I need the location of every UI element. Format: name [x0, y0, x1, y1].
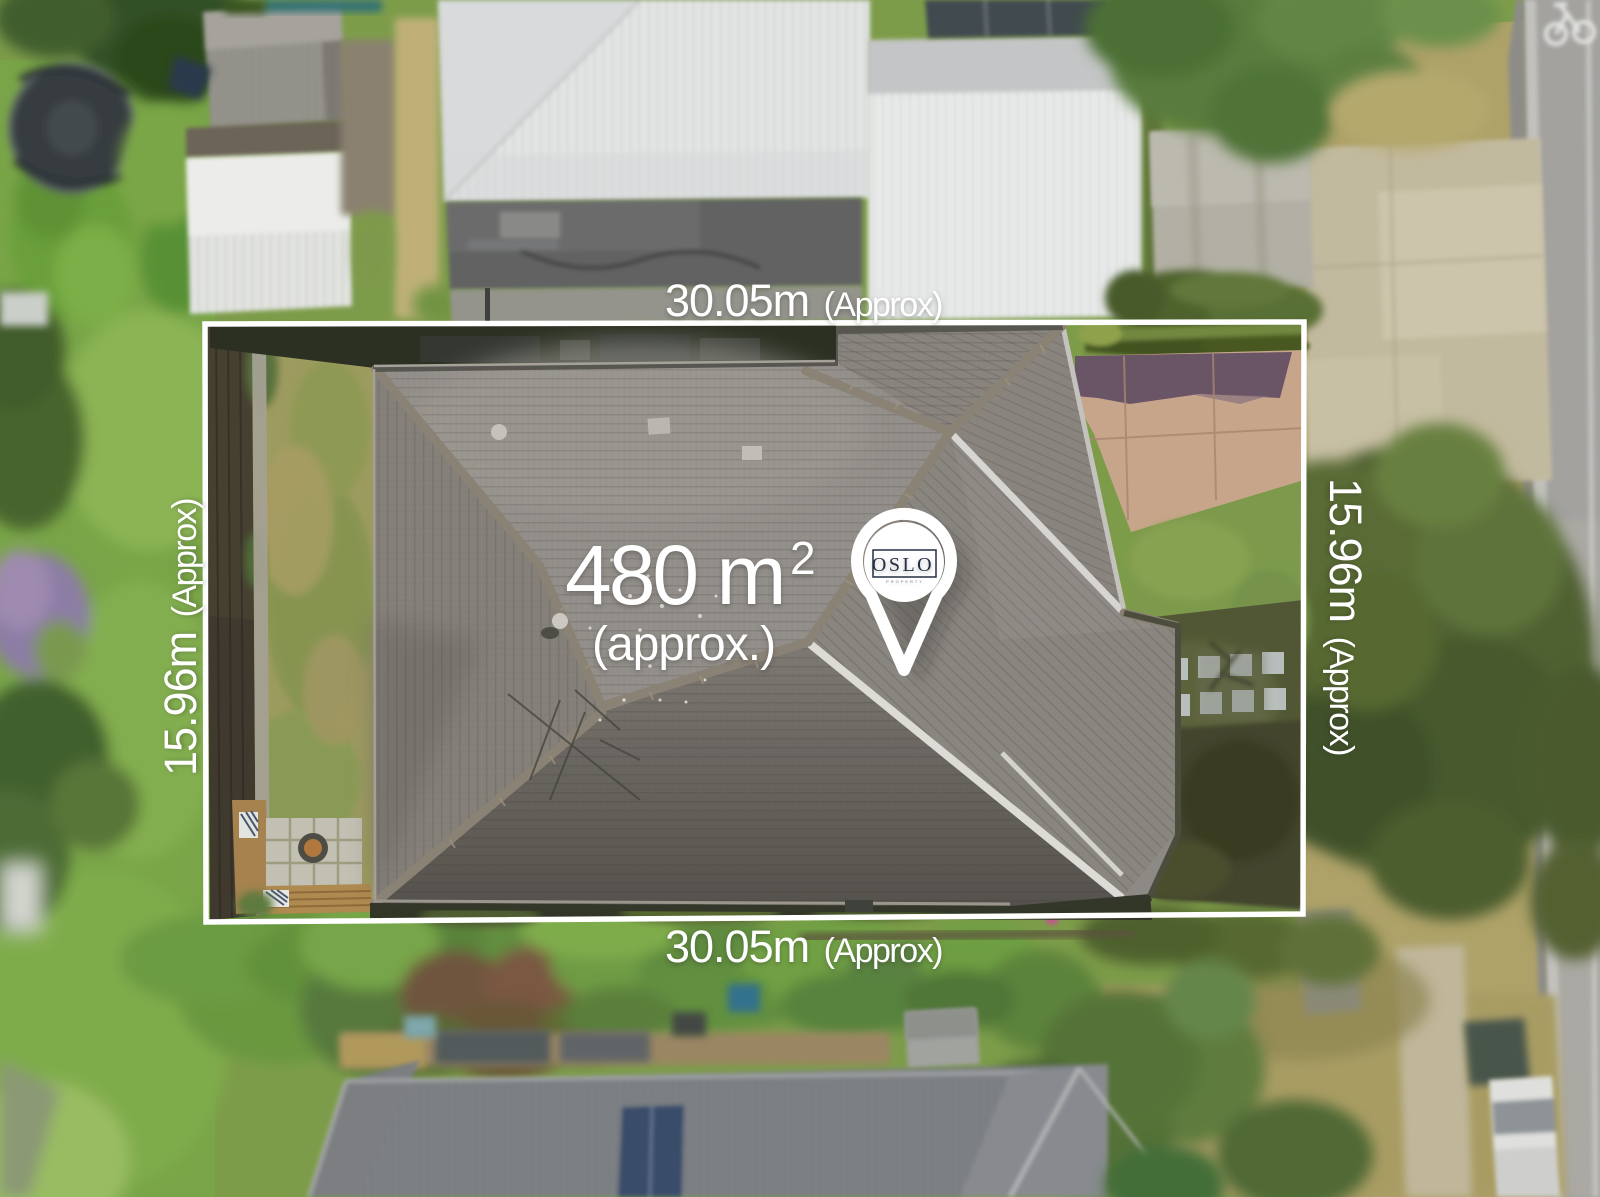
svg-text:(approx.): (approx.)	[592, 618, 775, 671]
svg-text:PROPERTY: PROPERTY	[886, 579, 924, 584]
svg-text:OSLO: OSLO	[872, 554, 934, 576]
svg-text:480 m: 480 m	[565, 528, 783, 622]
svg-text:2: 2	[790, 532, 816, 584]
